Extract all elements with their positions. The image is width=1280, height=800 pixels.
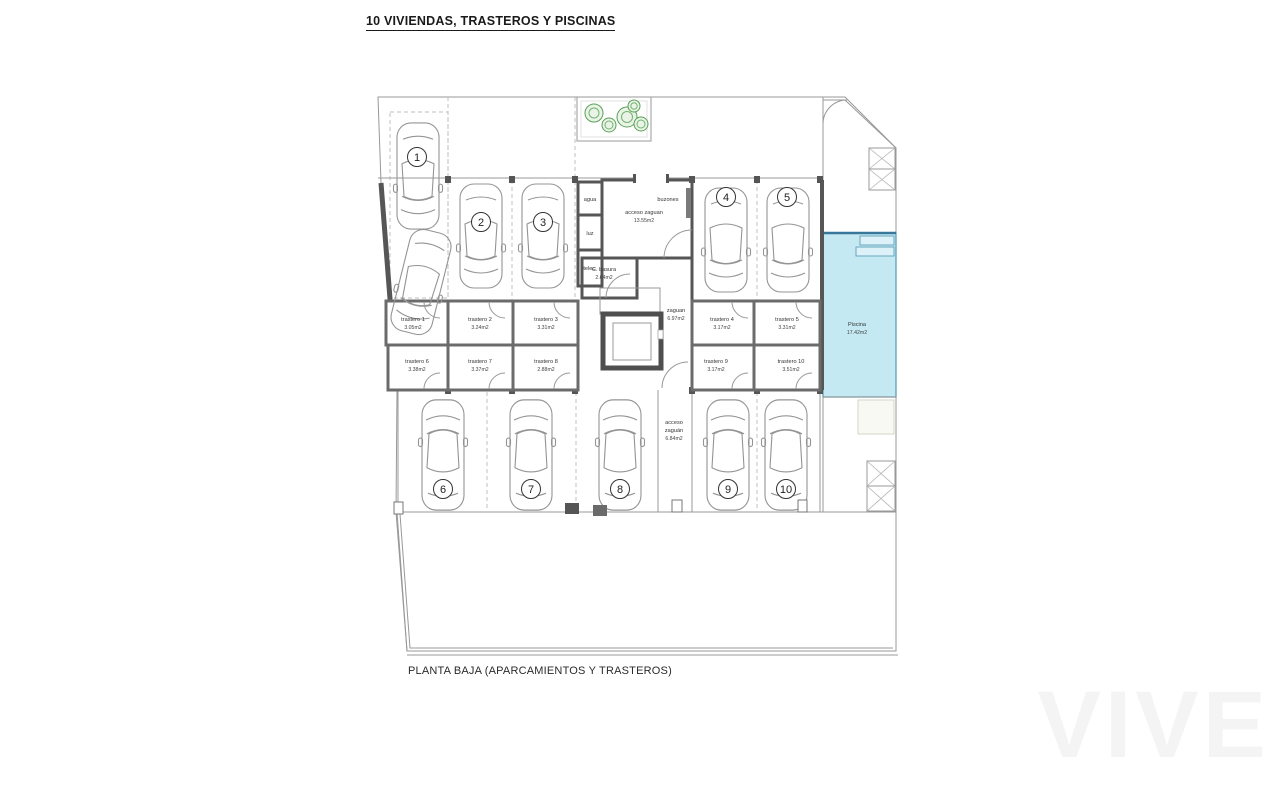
parking-space-4: 4 — [717, 188, 736, 207]
room-trastero-5 — [754, 301, 820, 345]
pool-label: Piscina — [848, 322, 867, 328]
svg-text:5: 5 — [784, 192, 790, 204]
plan-caption: PLANTA BAJA (APARCAMIENTOS Y TRASTEROS) — [408, 665, 672, 677]
svg-text:6: 6 — [440, 484, 446, 496]
trastero-1-label: trastero 1 — [401, 317, 425, 323]
stair-core — [600, 288, 688, 388]
luz-label: luz — [586, 231, 593, 237]
parking-space-2: 2 — [472, 213, 491, 232]
stairs — [600, 288, 660, 314]
svg-text:3.17m2: 3.17m2 — [713, 325, 730, 331]
garden-area — [823, 397, 896, 512]
trastero-3-label: trastero 3 — [534, 317, 558, 323]
elevator-car — [613, 323, 651, 360]
svg-text:2.88m2: 2.88m2 — [537, 367, 554, 373]
svg-text:8: 8 — [617, 484, 623, 496]
svg-text:7: 7 — [528, 484, 534, 496]
svg-text:13.55m2: 13.55m2 — [634, 218, 654, 224]
trastero-10-label: trastero 10 — [778, 359, 805, 365]
trastero-7-label: trastero 7 — [468, 359, 492, 365]
trastero-6-label: trastero 6 — [405, 359, 429, 365]
parking-space-3: 3 — [534, 213, 553, 232]
zaguan-label: zaguan — [667, 308, 685, 314]
svg-text:3.17m2: 3.17m2 — [707, 367, 724, 373]
svg-text:3.51m2: 3.51m2 — [782, 367, 799, 373]
svg-text:6.97m2: 6.97m2 — [667, 316, 684, 322]
parking-space-1: 1 — [408, 148, 427, 167]
terrace-area — [823, 100, 896, 233]
trastero-4-label: trastero 4 — [710, 317, 734, 323]
pool-step — [860, 236, 894, 245]
room-trastero-4 — [692, 301, 754, 345]
buzones-label: buzones — [657, 197, 678, 203]
car-2 — [457, 184, 506, 288]
svg-text:2: 2 — [478, 217, 484, 229]
svg-text:zaguán: zaguán — [665, 428, 683, 434]
mailboxes-strip — [686, 188, 691, 218]
car-1 — [394, 123, 443, 229]
trastero-2-label: trastero 2 — [468, 317, 492, 323]
svg-text:3.31m2: 3.31m2 — [537, 325, 554, 331]
parking-space-7: 7 — [522, 480, 541, 499]
svg-text:4: 4 — [723, 192, 729, 204]
svg-text:3.24m2: 3.24m2 — [471, 325, 488, 331]
trastero-5-label: trastero 5 — [775, 317, 799, 323]
room-trastero-1 — [386, 301, 448, 345]
svg-text:3.38m2: 3.38m2 — [408, 367, 425, 373]
room-trastero-3 — [513, 301, 578, 345]
acceso-sur-label: acceso — [665, 420, 683, 426]
lower-bay-lines — [397, 390, 896, 512]
bollard — [565, 503, 579, 514]
trastero-9-label: trastero 9 — [704, 359, 728, 365]
garden-grates — [867, 461, 895, 511]
acceso-zaguan-label: acceso zaguan — [625, 210, 663, 216]
watermark: VIVE — [1038, 671, 1271, 780]
svg-text:1: 1 — [414, 152, 420, 164]
car-3 — [519, 184, 568, 288]
planter-box — [577, 97, 651, 141]
svg-text:3: 3 — [540, 217, 546, 229]
floorplan-page: 10 VIVIENDAS, TRASTEROS Y PISCINAS — [0, 0, 1280, 800]
agua-label: agua — [584, 197, 597, 203]
room-trastero-2 — [448, 301, 513, 345]
plants — [585, 100, 648, 132]
svg-text:9: 9 — [725, 484, 731, 496]
pool: Piscina 17.42m2 — [823, 233, 896, 397]
parking-space-6: 6 — [434, 480, 453, 499]
parking-space-9: 9 — [719, 480, 738, 499]
parking-space-10: 10 — [777, 480, 796, 499]
trastero-8-label: trastero 8 — [534, 359, 558, 365]
svg-text:3.37m2: 3.37m2 — [471, 367, 488, 373]
patio-area — [397, 512, 896, 651]
basura-label: C. basura — [592, 267, 617, 273]
pool-area: 17.42m2 — [847, 330, 867, 336]
bollard — [593, 505, 607, 516]
parking-space-5: 5 — [778, 188, 797, 207]
svg-text:6.84m2: 6.84m2 — [665, 436, 682, 442]
pool-step — [856, 247, 894, 256]
svg-text:10: 10 — [780, 484, 792, 496]
page-title: 10 VIVIENDAS, TRASTEROS Y PISCINAS — [366, 14, 615, 31]
svg-text:3.31m2: 3.31m2 — [778, 325, 795, 331]
terrace-grates — [869, 148, 895, 190]
parking-space-8: 8 — [611, 480, 630, 499]
svg-text:2.64m2: 2.64m2 — [595, 275, 612, 281]
svg-text:3.05m2: 3.05m2 — [404, 325, 421, 331]
